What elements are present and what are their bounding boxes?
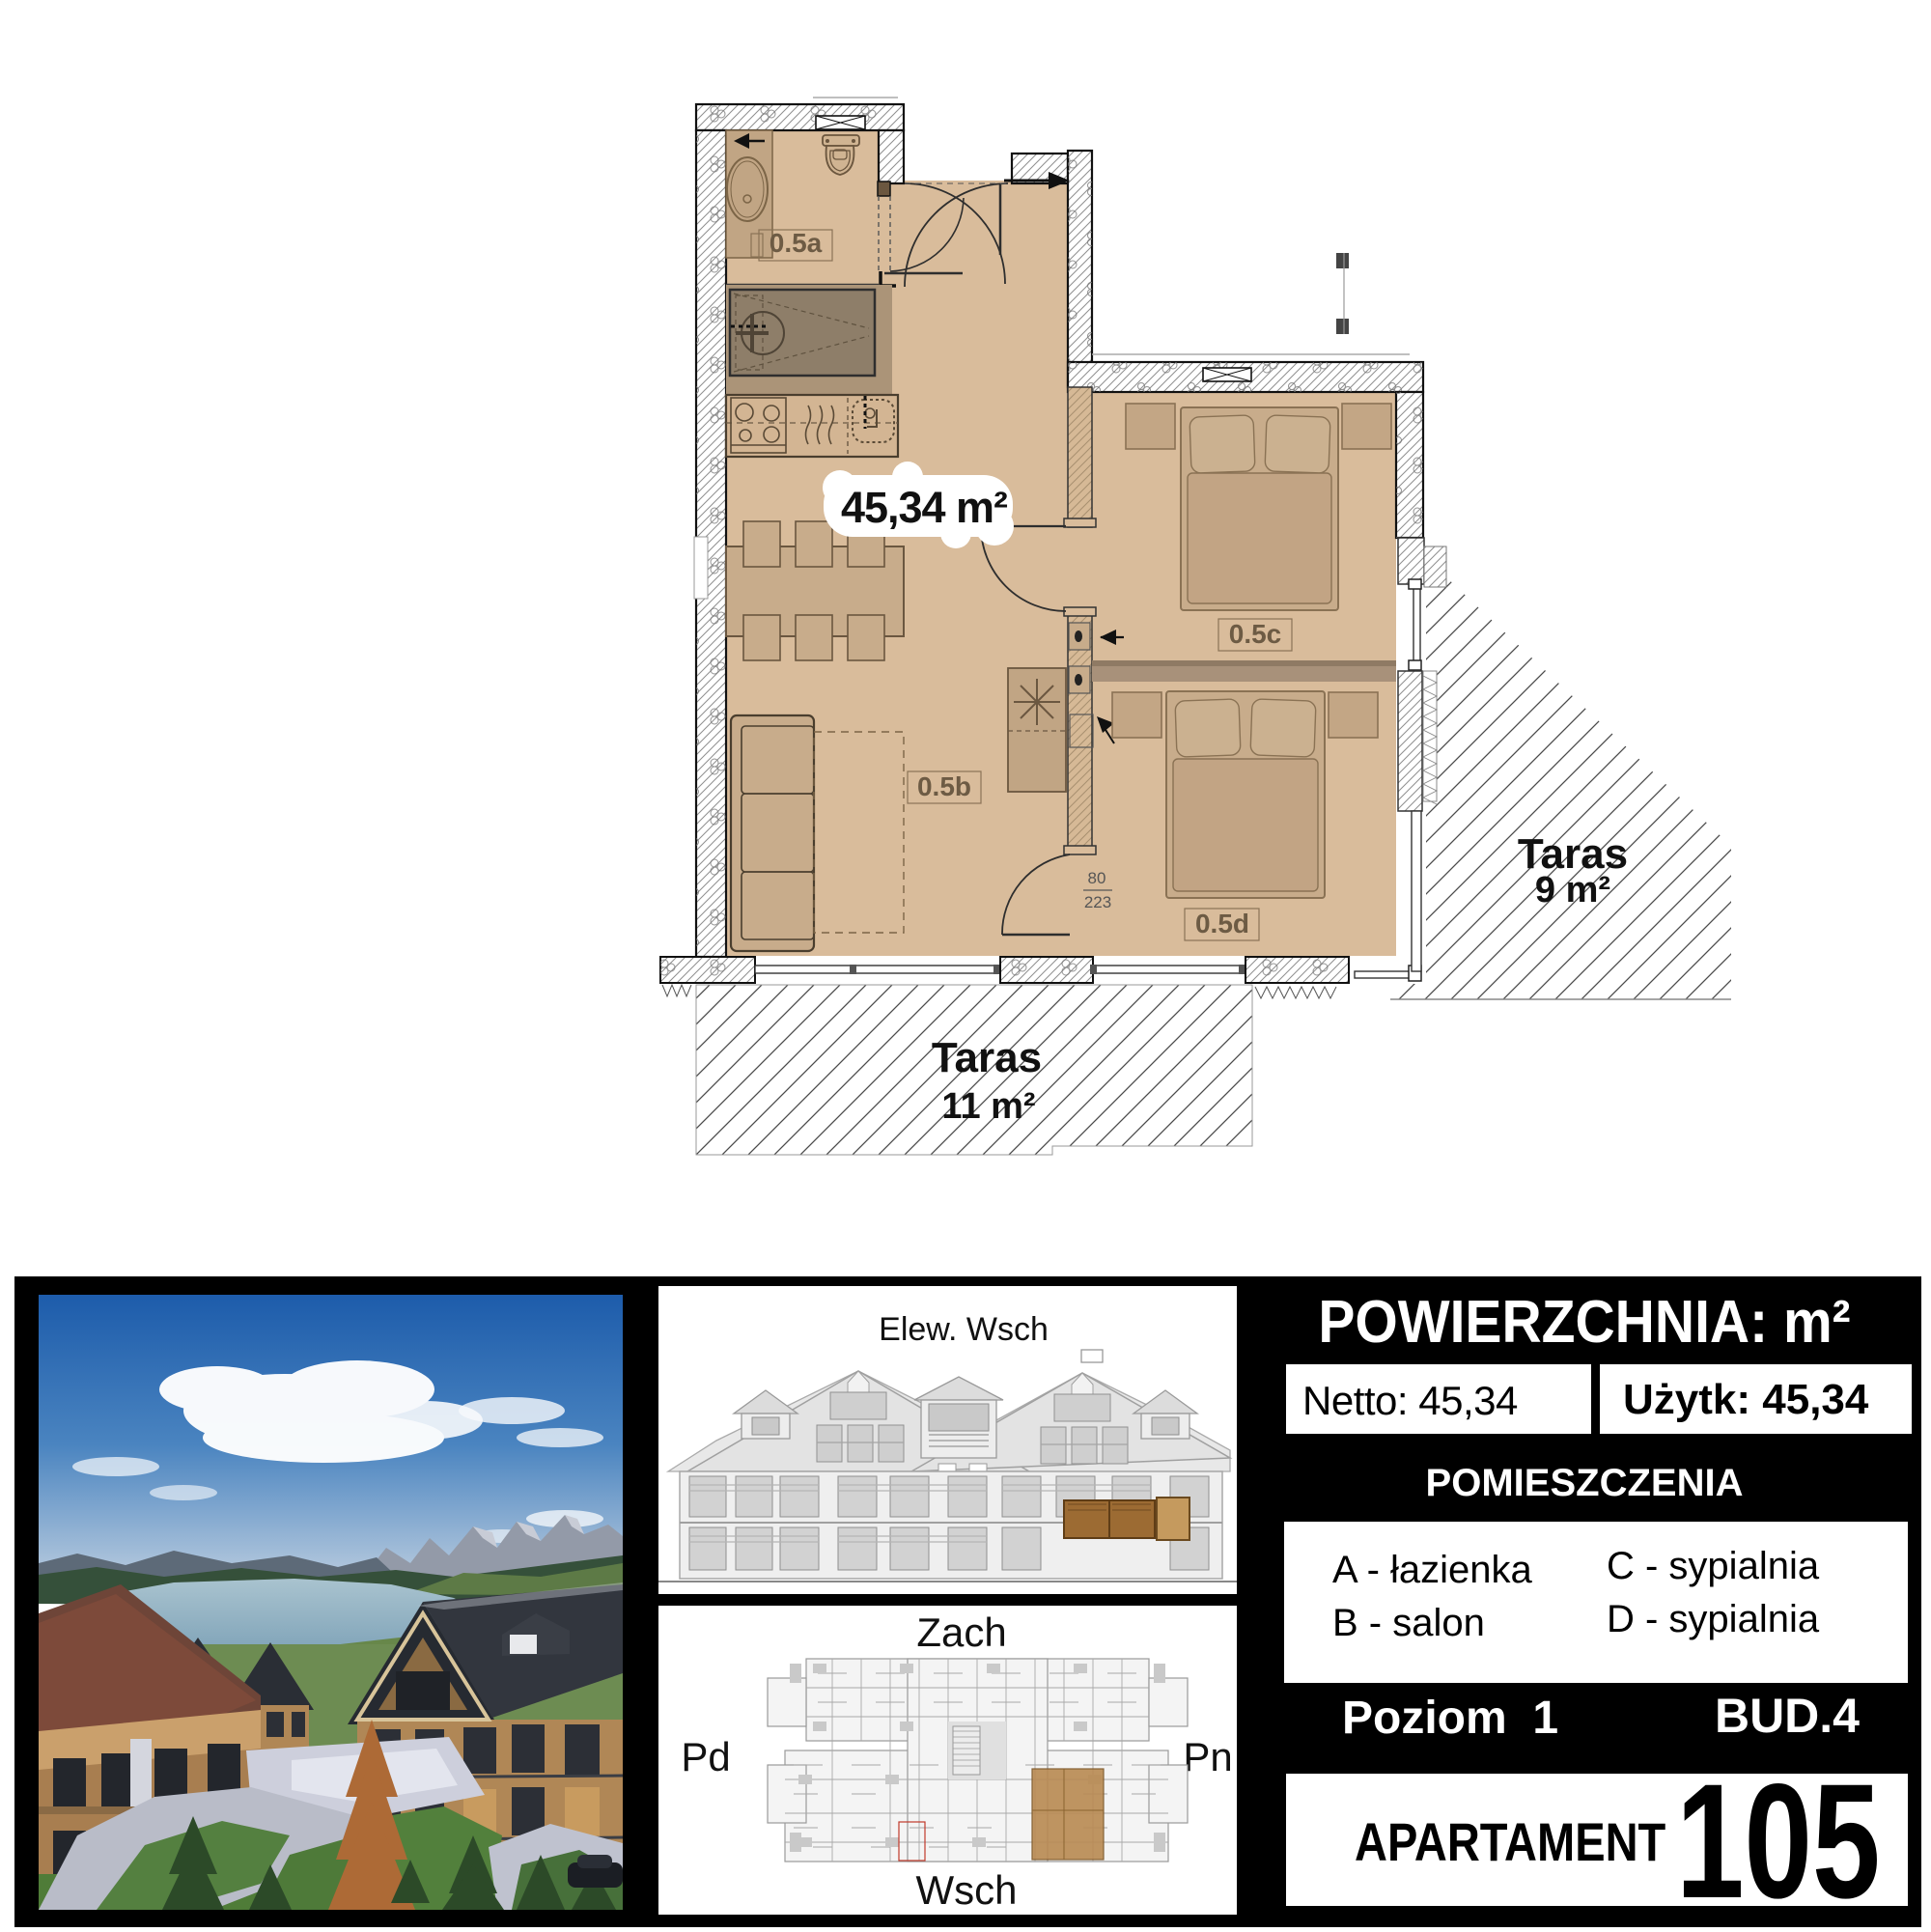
svg-text:223: 223 <box>1084 893 1111 911</box>
svg-text:11 m²: 11 m² <box>941 1086 1035 1127</box>
svg-text:0.5c: 0.5c <box>1229 619 1282 649</box>
svg-text:Zach: Zach <box>916 1610 1006 1655</box>
svg-text:0.5b: 0.5b <box>917 771 971 801</box>
svg-text:Pn: Pn <box>1183 1734 1232 1779</box>
svg-text:80: 80 <box>1088 869 1106 887</box>
svg-text:Elew. Wsch: Elew. Wsch <box>879 1311 1049 1348</box>
svg-text:0.5d: 0.5d <box>1195 909 1249 938</box>
svg-text:45,34 m²: 45,34 m² <box>841 483 1008 532</box>
svg-text:9 m²: 9 m² <box>1535 870 1610 910</box>
svg-text:0.5a: 0.5a <box>770 228 823 258</box>
svg-text:Taras: Taras <box>932 1034 1042 1081</box>
svg-text:Pd: Pd <box>681 1734 730 1779</box>
svg-text:Wsch: Wsch <box>916 1867 1018 1913</box>
